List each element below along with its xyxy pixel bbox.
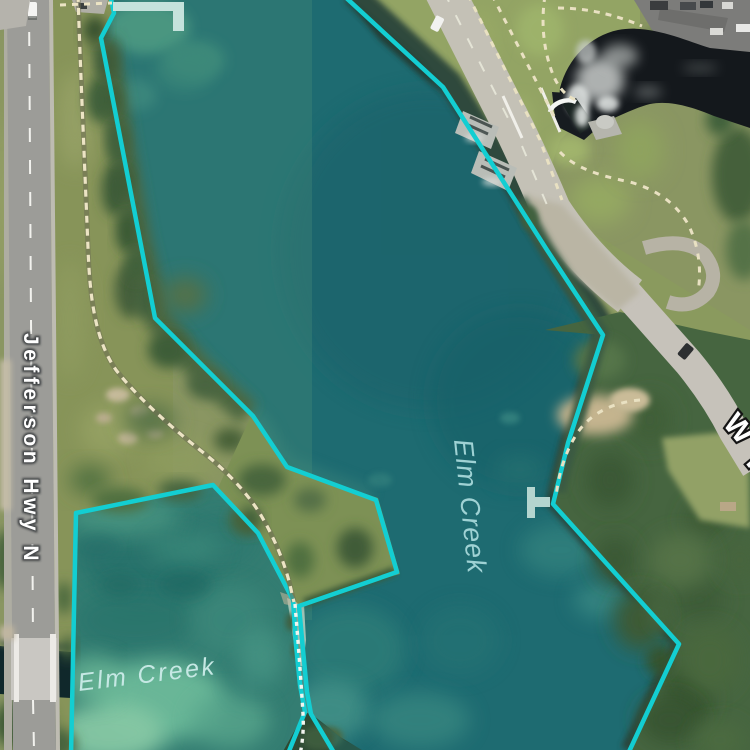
svg-text:Jefferson Hwy N: Jefferson Hwy N: [19, 333, 42, 565]
